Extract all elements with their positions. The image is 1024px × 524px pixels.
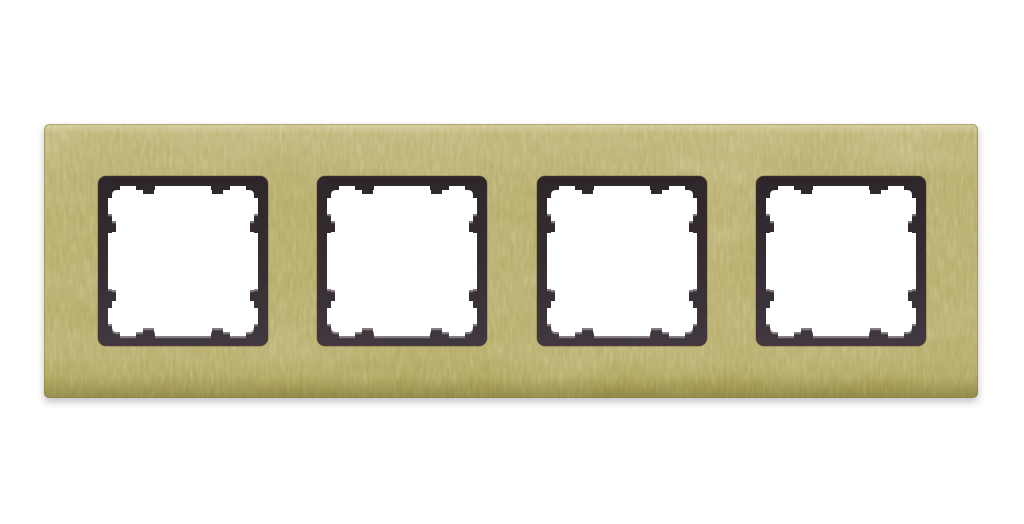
- cover-frame: [44, 124, 978, 398]
- frame-opening-2: [317, 176, 487, 346]
- product-photo: [0, 0, 1024, 524]
- frame-opening-1: [98, 176, 268, 346]
- frame-opening-4: [756, 176, 926, 346]
- plate-top-sheen: [44, 124, 978, 134]
- frame-opening-3: [537, 176, 707, 346]
- plate-bottom-shade: [44, 376, 978, 398]
